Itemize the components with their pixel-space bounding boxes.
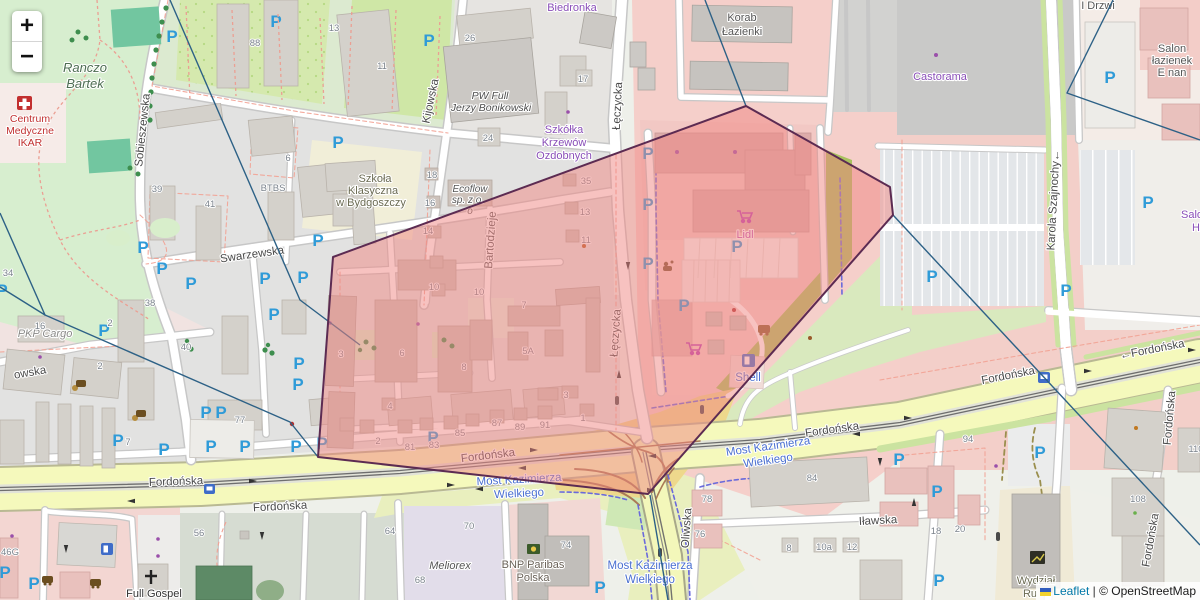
svg-text:P: P xyxy=(28,574,39,593)
svg-text:Korab: Korab xyxy=(727,12,756,24)
svg-text:P: P xyxy=(1104,68,1115,87)
svg-text:11: 11 xyxy=(377,61,387,72)
svg-text:Centrum: Centrum xyxy=(10,113,51,125)
svg-text:26: 26 xyxy=(465,33,476,44)
svg-text:88: 88 xyxy=(250,38,261,49)
svg-text:16: 16 xyxy=(425,198,436,209)
svg-text:64: 64 xyxy=(385,526,396,537)
svg-text:Szkoła: Szkoła xyxy=(358,173,392,185)
svg-text:Krzewów: Krzewów xyxy=(542,137,587,149)
svg-text:18: 18 xyxy=(427,170,438,181)
svg-text:P: P xyxy=(259,269,270,288)
svg-text:H: H xyxy=(1192,222,1200,234)
svg-text:7: 7 xyxy=(125,437,130,448)
svg-text:P: P xyxy=(312,231,323,250)
svg-text:BTBS: BTBS xyxy=(261,183,286,194)
svg-text:P: P xyxy=(893,450,904,469)
svg-text:łazienek: łazienek xyxy=(1152,55,1193,67)
svg-text:P: P xyxy=(423,31,434,50)
svg-text:39: 39 xyxy=(152,184,163,195)
svg-text:P: P xyxy=(933,571,944,590)
svg-text:IKAR: IKAR xyxy=(18,137,43,149)
svg-text:Salo: Salo xyxy=(1181,209,1200,221)
svg-text:Iławska: Iławska xyxy=(859,514,899,528)
svg-text:110: 110 xyxy=(1188,444,1200,455)
svg-text:P: P xyxy=(1060,281,1071,300)
svg-text:PW Full: PW Full xyxy=(472,90,509,102)
svg-text:Jerzy Bonikowski: Jerzy Bonikowski xyxy=(450,102,532,114)
svg-text:P: P xyxy=(1034,443,1045,462)
svg-text:Bartek: Bartek xyxy=(66,76,105,91)
svg-text:34: 34 xyxy=(3,268,14,279)
svg-text:84: 84 xyxy=(807,473,818,484)
svg-text:Castorama: Castorama xyxy=(913,71,968,83)
svg-text:Ozdobnych: Ozdobnych xyxy=(536,150,592,162)
svg-text:Salon: Salon xyxy=(1158,43,1186,55)
svg-text:2: 2 xyxy=(107,318,112,329)
svg-text:Ru: Ru xyxy=(1023,588,1037,600)
svg-text:56: 56 xyxy=(194,528,205,539)
svg-text:20: 20 xyxy=(955,524,966,535)
svg-text:74: 74 xyxy=(561,540,572,551)
svg-text:12: 12 xyxy=(847,542,858,553)
svg-text:w Bydgoszczy: w Bydgoszczy xyxy=(335,197,406,209)
svg-text:77: 77 xyxy=(235,415,246,426)
svg-text:P: P xyxy=(268,305,279,324)
svg-text:Polska: Polska xyxy=(516,572,550,584)
svg-text:Łęczycka: Łęczycka xyxy=(611,81,626,130)
svg-text:Biedronka: Biedronka xyxy=(547,2,597,14)
svg-text:78: 78 xyxy=(702,494,713,505)
svg-text:P: P xyxy=(332,133,343,152)
svg-text:BNP Paribas: BNP Paribas xyxy=(502,559,565,571)
svg-text:P: P xyxy=(112,431,123,450)
svg-text:P: P xyxy=(158,440,169,459)
svg-text:P: P xyxy=(185,274,196,293)
svg-text:70: 70 xyxy=(464,521,475,532)
svg-text:Szkółka: Szkółka xyxy=(545,124,584,136)
svg-text:P: P xyxy=(0,563,11,582)
svg-text:108: 108 xyxy=(1130,494,1146,505)
svg-text:6: 6 xyxy=(285,153,290,164)
svg-text:Medyczne: Medyczne xyxy=(6,125,54,137)
svg-text:13: 13 xyxy=(329,23,340,34)
svg-text:P: P xyxy=(594,578,605,597)
svg-text:P: P xyxy=(215,403,226,422)
svg-text:P: P xyxy=(297,268,308,287)
svg-text:Łazienki: Łazienki xyxy=(722,26,762,38)
svg-text:46G: 46G xyxy=(1,547,19,558)
svg-text:P: P xyxy=(292,375,303,394)
svg-text:Fordońska: Fordońska xyxy=(149,475,204,489)
svg-text:Most Kazimierza: Most Kazimierza xyxy=(608,560,694,572)
svg-text:P: P xyxy=(293,354,304,373)
svg-text:94: 94 xyxy=(963,434,974,445)
svg-text:P: P xyxy=(200,403,211,422)
svg-text:40: 40 xyxy=(181,342,192,353)
svg-text:P: P xyxy=(156,259,167,278)
svg-text:38: 38 xyxy=(145,298,156,309)
svg-text:16: 16 xyxy=(35,321,46,332)
svg-text:P: P xyxy=(239,437,250,456)
svg-text:24: 24 xyxy=(483,133,494,144)
svg-text:2: 2 xyxy=(97,361,102,372)
svg-text:76: 76 xyxy=(695,529,706,540)
svg-text:18: 18 xyxy=(931,526,942,537)
svg-text:68: 68 xyxy=(415,575,426,586)
svg-text:Ranczo: Ranczo xyxy=(63,60,107,75)
svg-text:P: P xyxy=(205,437,216,456)
svg-text:Wielkiego: Wielkiego xyxy=(625,574,675,586)
svg-text:10a: 10a xyxy=(816,542,833,553)
svg-text:8: 8 xyxy=(786,543,791,554)
svg-text:P: P xyxy=(166,27,177,46)
svg-text:P: P xyxy=(931,482,942,501)
svg-text:E nan: E nan xyxy=(1158,67,1187,79)
svg-text:P: P xyxy=(290,437,301,456)
svg-text:P: P xyxy=(137,238,148,257)
svg-text:Ecoflow: Ecoflow xyxy=(452,184,488,195)
svg-text:P: P xyxy=(926,267,937,286)
svg-text:P: P xyxy=(1142,193,1153,212)
svg-text:41: 41 xyxy=(205,199,216,210)
svg-text:Klasyczna: Klasyczna xyxy=(348,185,399,197)
svg-text:Full Gospel: Full Gospel xyxy=(126,588,182,600)
svg-text:P: P xyxy=(270,12,281,31)
svg-text:Meliorex: Meliorex xyxy=(429,560,471,572)
svg-text:17: 17 xyxy=(578,74,589,85)
